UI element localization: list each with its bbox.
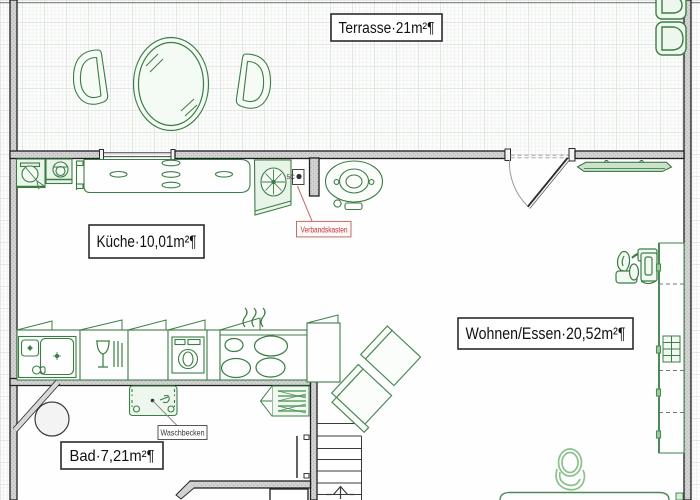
svg-text:Wohnen/Essen·20,52m²¶: Wohnen/Essen·20,52m²¶ xyxy=(466,325,626,343)
svg-text:5C: 5C xyxy=(287,174,296,181)
svg-text:Terrasse·21m²¶: Terrasse·21m²¶ xyxy=(339,20,435,37)
svg-text:Küche·10,01m²¶: Küche·10,01m²¶ xyxy=(97,233,197,251)
svg-text:Verbandskasten: Verbandskasten xyxy=(301,226,348,235)
svg-text:Waschbecken: Waschbecken xyxy=(161,428,205,438)
svg-text:Bad·7,21m²¶: Bad·7,21m²¶ xyxy=(70,448,155,465)
